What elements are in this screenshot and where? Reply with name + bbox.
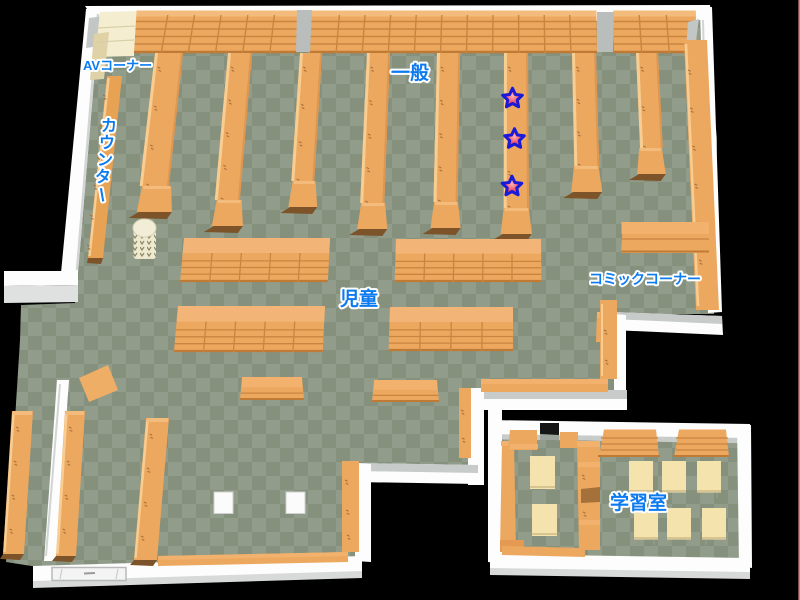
svg-text:カ: カ (101, 117, 117, 135)
svg-text:ウ: ウ (99, 134, 115, 152)
svg-text:ー: ー (91, 186, 111, 205)
svg-text:児童: 児童 (339, 287, 378, 310)
svg-text:AVコーナー: AVコーナー (83, 58, 152, 73)
svg-text:コミックコーナー: コミックコーナー (589, 271, 701, 287)
svg-text:一般: 一般 (391, 61, 429, 84)
svg-text:ン: ン (97, 152, 113, 169)
svg-text:学習室: 学習室 (610, 491, 667, 514)
svg-text:タ: タ (95, 168, 111, 186)
